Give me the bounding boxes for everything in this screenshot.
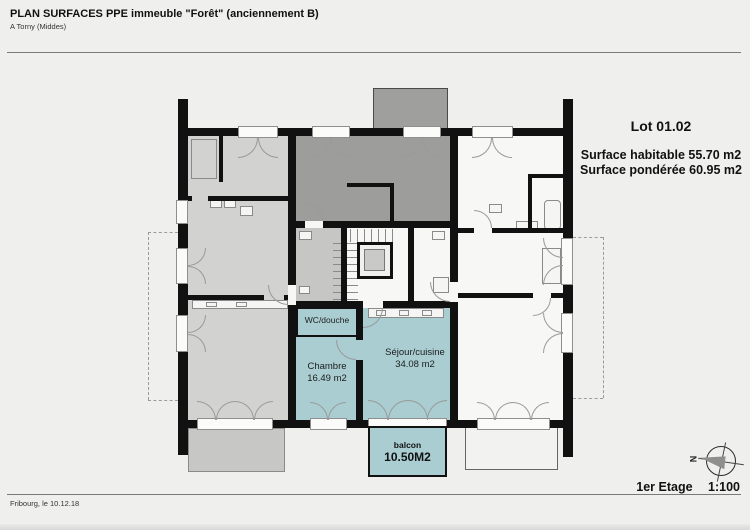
kitchen-appliance [206,302,217,307]
window [176,200,188,224]
balcony-top-dark [373,88,448,129]
door-opening [474,228,492,233]
projection-dash-line [148,232,178,233]
scan-edge-shadow [0,524,750,530]
toilet-fixture [489,204,502,213]
kitchen-appliance [236,302,247,307]
window [312,126,350,138]
sink-fixture [299,286,310,294]
floor-label: 1er Etage [636,480,692,494]
floor-scale: 1er Etage 1:100 [636,480,740,494]
window [176,248,188,284]
scale-label: 1:100 [708,480,740,494]
toilet-fixture [432,231,445,240]
bathtub-fixture [544,200,561,230]
toilet-fixture [299,231,312,240]
interior-wall [347,183,394,187]
toilet-fixture [240,206,253,216]
interior-wall [528,174,532,232]
chambre-area: 16.49 m2 [277,373,377,385]
surface-ponderee: Surface pondérée 60.95 m2 [575,163,747,178]
sejour-label: Séjour/cuisine 34.08 m2 [355,347,475,371]
sink-fixture [210,200,222,208]
projection-dash-line [603,237,604,398]
interior-wall [408,221,414,308]
kitchen-appliance [422,310,432,316]
balcon-area: 10.50M2 [384,450,431,464]
sejour-name: Séjour/cuisine [355,347,475,359]
interior-wall [341,221,347,308]
stair-treads [343,229,393,242]
door-opening [192,196,208,201]
projection-dash-line [148,232,149,400]
projection-dash-line [148,400,178,401]
window [403,126,441,138]
lot-info: Lot 01.02 Surface habitable 55.70 m2 Sur… [575,118,747,178]
window [472,126,513,138]
balcony-bottom-white [465,425,558,470]
sink-fixture [224,200,236,208]
lot-number: Lot 01.02 [575,118,747,134]
wc-douche-label: WC/douche [296,315,358,326]
footer-divider [7,494,741,495]
kitchen-appliance [399,310,409,316]
door-opening [450,282,458,302]
compass-north-label: N [688,456,698,463]
projection-dash-line [573,237,603,238]
surface-habitable: Surface habitable 55.70 m2 [575,148,747,163]
place-date: Fribourg, le 10.12.18 [10,499,79,508]
sejour-area: 34.08 m2 [355,359,475,371]
elevator-car [364,249,385,271]
footer: 1er Etage 1:100 Fribourg, le 10.12.18 [0,470,750,530]
door-opening [363,301,383,308]
window [176,315,188,352]
interior-wall [450,136,458,420]
balcony-bottom-gray [188,428,285,472]
compass-needle [699,454,725,470]
scan-page: { "header": { "title": "PLAN SURFACES PP… [0,0,750,530]
window [238,126,278,138]
closet-fixture [191,139,217,179]
interior-wall [390,183,394,225]
interior-wall [528,174,563,178]
door-opening [305,221,323,228]
balcon-label: balcon [394,440,421,450]
projection-dash-line [573,398,603,399]
floor-plan: balcon 10.50M2 WC/douche Chambre 16.49 m… [0,0,750,530]
door-opening [288,285,296,305]
interior-wall [219,136,223,182]
